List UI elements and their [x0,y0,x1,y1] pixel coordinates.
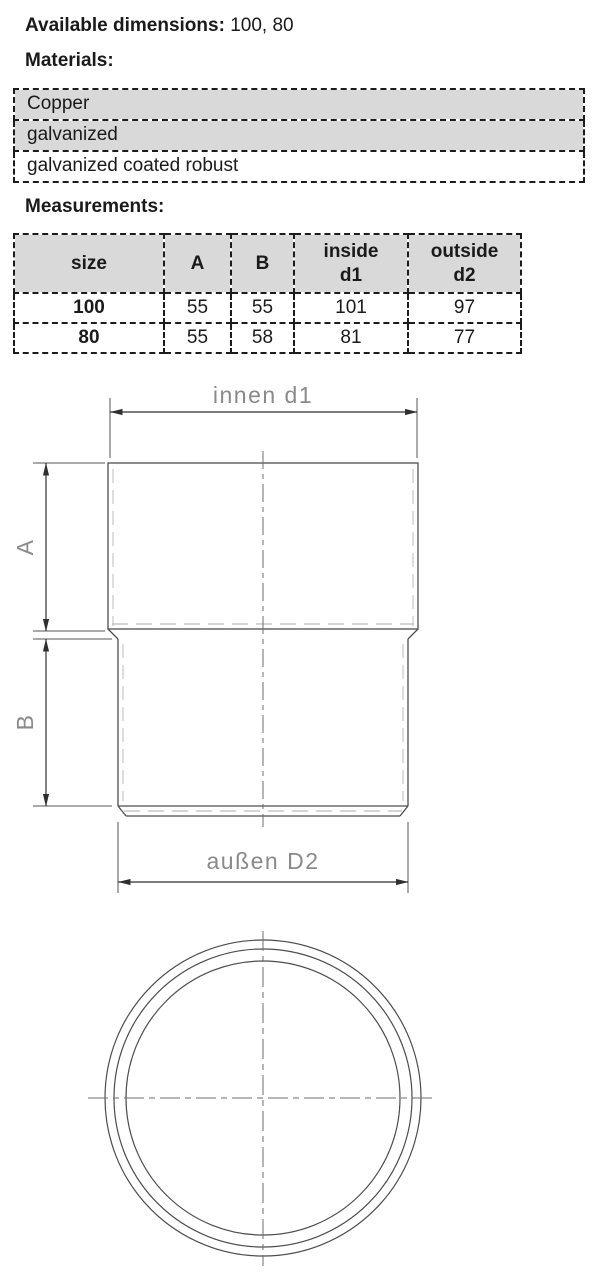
technical-drawing: innen d1 [0,0,600,1278]
available-dimensions-label: Available dimensions: [25,15,225,36]
table-row: 80 55 58 81 77 [14,323,521,353]
chamfer-bottom-right [400,806,408,816]
inner-diameter-circle [126,961,400,1235]
cell-size: 80 [14,323,164,353]
available-dimensions-value: 100, 80 [230,15,293,36]
dimension-innen-d1: innen d1 [110,382,417,458]
materials-table: Copper galvanized galvanized coated robu… [13,88,585,183]
col-header-size: size [14,234,164,293]
chamfer-left [108,629,118,639]
col-header-inside-d1: insided1 [294,234,408,293]
pipe-lower-section [118,639,408,816]
cell-d2: 97 [408,293,521,323]
chamfer-right [408,629,418,639]
material-cell: Copper [14,89,584,120]
cell-d1: 81 [294,323,408,353]
table-row: galvanized [14,120,584,151]
chamfer-bottom-left [118,806,126,816]
table-row: Copper [14,89,584,120]
materials-heading: Materials: [25,50,114,72]
cell-d2: 77 [408,323,521,353]
cell-a: 55 [164,293,231,323]
dimension-b: B [12,639,112,806]
cell-d1: 101 [294,293,408,323]
product-spec-page: Available dimensions: 100, 80 Materials:… [0,0,600,1278]
cell-b: 58 [231,323,294,353]
dimension-label-innen-d1: innen d1 [213,382,313,408]
col-header-outside-d2: outsided2 [408,234,521,293]
cell-a: 55 [164,323,231,353]
col-header-a: A [164,234,231,293]
pipe-upper-outline [108,463,418,629]
dimension-label-b: B [12,714,38,731]
material-cell: galvanized coated robust [14,151,584,182]
col-header-b: B [231,234,294,293]
pipe-top-view [88,931,437,1266]
pipe-upper-section [108,463,418,639]
measurements-heading: Measurements: [25,196,164,218]
dimension-label-aussen-d2: außen D2 [206,848,319,874]
table-row: 100 55 55 101 97 [14,293,521,323]
dimension-aussen-d2: außen D2 [118,822,408,893]
measurements-table: size A B insided1 outsided2 100 55 55 10… [13,233,522,354]
cell-size: 100 [14,293,164,323]
outer-diameter-circle [105,940,421,1256]
middle-diameter-circle [114,949,412,1247]
table-header-row: size A B insided1 outsided2 [14,234,521,293]
table-row: galvanized coated robust [14,151,584,182]
cell-b: 55 [231,293,294,323]
material-cell: galvanized [14,120,584,151]
dimension-label-a: A [12,539,38,556]
available-dimensions-line: Available dimensions: 100, 80 [25,15,294,37]
dimension-a: A [12,463,105,631]
